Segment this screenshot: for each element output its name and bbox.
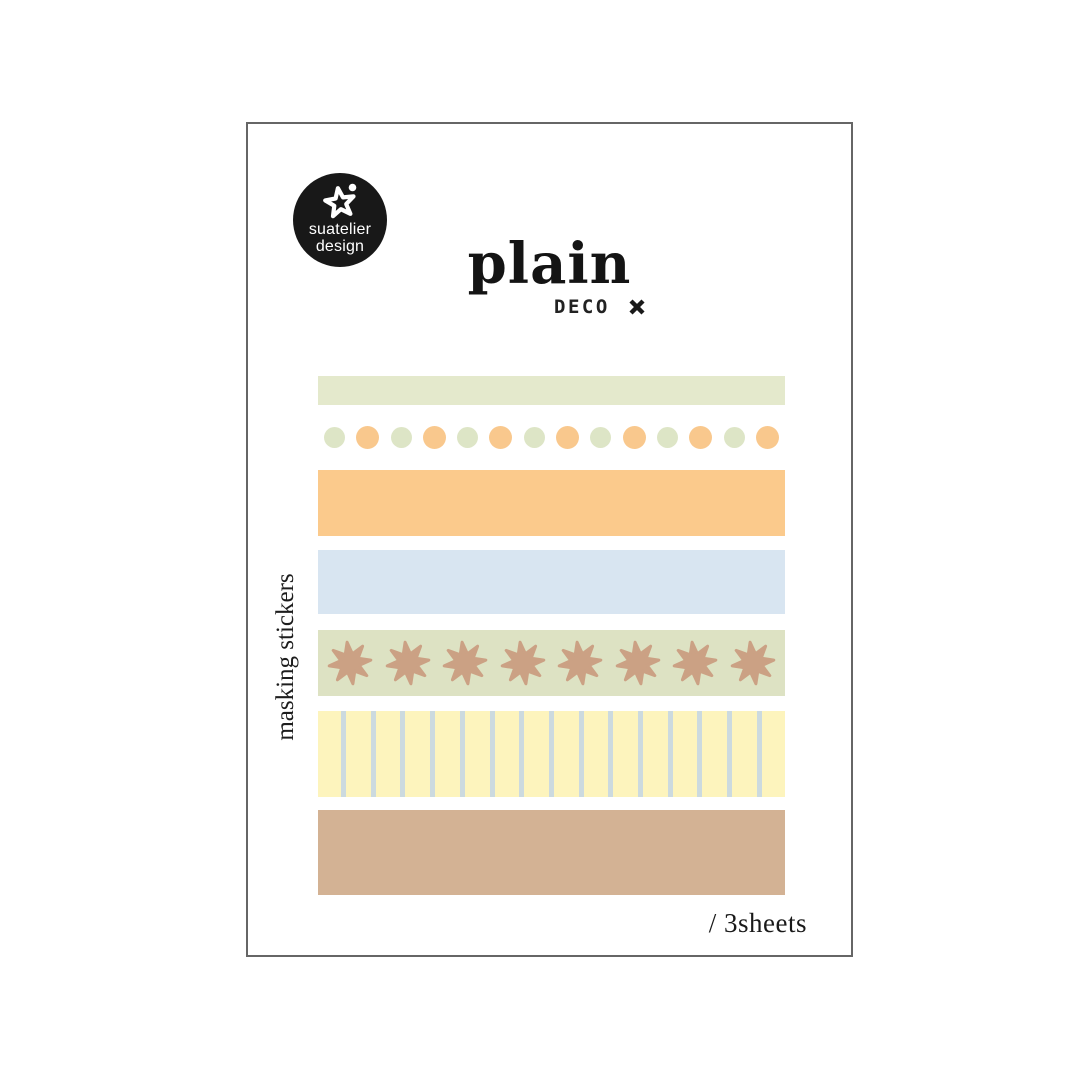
dot <box>391 427 412 448</box>
tape-dots <box>318 426 785 449</box>
stripe-line <box>460 711 465 797</box>
tape-tan <box>318 810 785 895</box>
dot <box>423 426 446 449</box>
sheet-count: / 3sheets <box>709 908 807 939</box>
side-label: masking stickers <box>272 556 300 758</box>
stripe-line <box>727 711 732 797</box>
stripe-line <box>400 711 405 797</box>
star-icon <box>615 640 661 686</box>
stripe-line <box>549 711 554 797</box>
dot <box>556 426 579 449</box>
stripe-line <box>638 711 643 797</box>
stripe-line <box>668 711 673 797</box>
package-card: suatelier design plain DECO masking stic… <box>246 122 853 957</box>
stripe-line <box>697 711 702 797</box>
dot <box>356 426 379 449</box>
dot <box>524 427 545 448</box>
dot <box>756 426 779 449</box>
dot <box>489 426 512 449</box>
tape-stripes <box>318 711 785 797</box>
dot <box>623 426 646 449</box>
dot <box>590 427 611 448</box>
star-icon <box>557 640 603 686</box>
stripe-line <box>579 711 584 797</box>
stripe-line <box>757 711 762 797</box>
tape-blue <box>318 550 785 614</box>
stripe-line <box>608 711 613 797</box>
dot <box>324 427 345 448</box>
tape-stars <box>318 630 785 696</box>
star-icon <box>442 640 488 686</box>
dot <box>724 427 745 448</box>
stripe-line <box>430 711 435 797</box>
dot <box>689 426 712 449</box>
dot <box>457 427 478 448</box>
tape-strips <box>318 124 785 955</box>
stripe-line <box>341 711 346 797</box>
star-icon <box>500 640 546 686</box>
stripe-line <box>371 711 376 797</box>
star-icon <box>730 640 776 686</box>
stripe-line <box>519 711 524 797</box>
tape-sage <box>318 376 785 405</box>
star-icon <box>327 640 373 686</box>
tape-orange <box>318 470 785 536</box>
dot <box>657 427 678 448</box>
star-icon <box>672 640 718 686</box>
stripe-line <box>490 711 495 797</box>
star-icon <box>385 640 431 686</box>
